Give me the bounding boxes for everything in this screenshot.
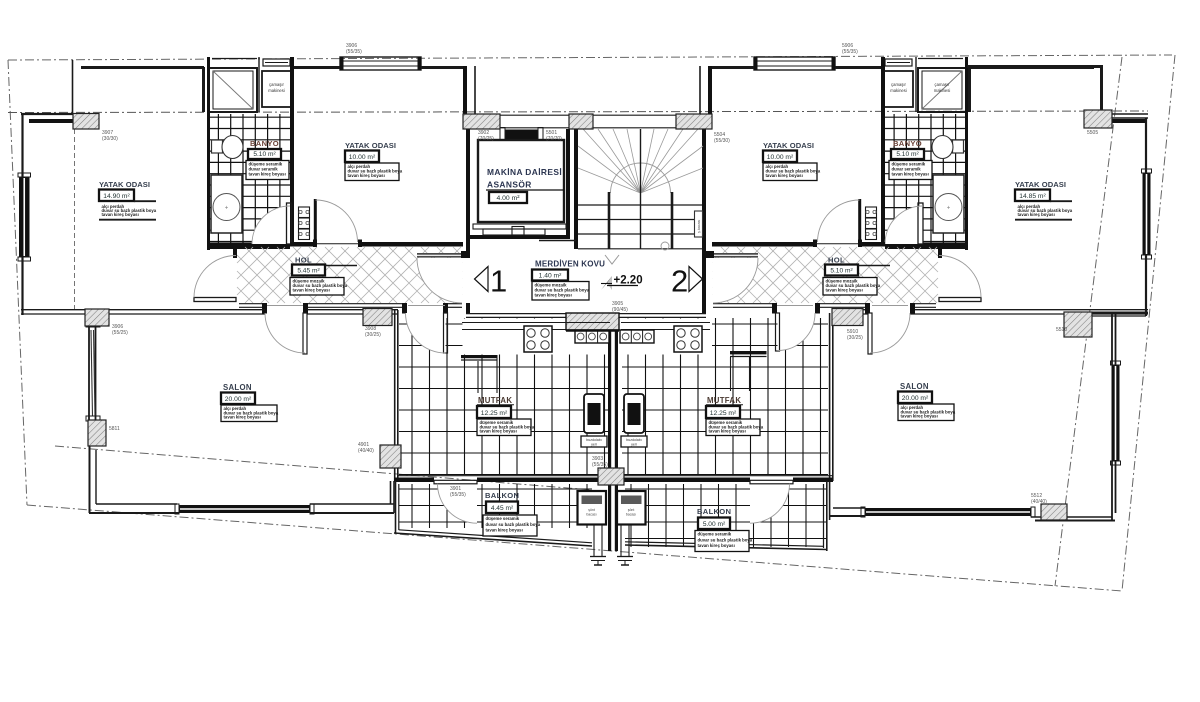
svg-text:çamaşır: çamaşır <box>891 82 906 87</box>
svg-text:ASANSÖR: ASANSÖR <box>487 180 532 190</box>
svg-text:14.85 m²: 14.85 m² <box>1019 193 1046 200</box>
svg-text:duvar su bazlı plastik boya: duvar su bazlı plastik boya <box>486 522 541 527</box>
svg-text:5811: 5811 <box>109 426 120 432</box>
svg-text:14.90 m²: 14.90 m² <box>103 193 130 200</box>
svg-text:BALKON: BALKON <box>697 507 731 516</box>
svg-text:tavan kireç boyası: tavan kireç boyası <box>698 543 735 548</box>
svg-text:tavan kireç boyası: tavan kireç boyası <box>486 528 523 533</box>
svg-text:yeri: yeri <box>591 443 597 447</box>
svg-text:5.45 m²: 5.45 m² <box>297 268 320 275</box>
svg-text:SALON: SALON <box>223 383 252 392</box>
svg-text:çamaşır: çamaşır <box>269 82 284 87</box>
svg-text:+: + <box>225 206 229 212</box>
svg-text:(55/35): (55/35) <box>450 492 466 498</box>
svg-text:5.10 m²: 5.10 m² <box>830 268 853 275</box>
svg-text:1.40 m²: 1.40 m² <box>539 273 562 280</box>
svg-text:tavan kireç boyası: tavan kireç boyası <box>480 429 517 434</box>
svg-text:10.00 m²: 10.00 m² <box>767 154 794 161</box>
svg-text:düşeme seramik: düşeme seramik <box>486 516 520 521</box>
svg-text:(30/25): (30/25) <box>365 332 381 338</box>
svg-text:4.45 m²: 4.45 m² <box>491 505 514 512</box>
svg-text:şönt: şönt <box>628 508 635 512</box>
svg-text:(90/45): (90/45) <box>612 307 628 313</box>
svg-text:tavan kireç boyası: tavan kireç boyası <box>102 212 139 217</box>
svg-text:yeri: yeri <box>631 443 637 447</box>
svg-text:10.00 m²: 10.00 m² <box>349 154 376 161</box>
svg-text:5.10 m²: 5.10 m² <box>253 151 276 158</box>
svg-text:(55/35): (55/35) <box>592 462 608 468</box>
svg-text:BANYO: BANYO <box>250 139 279 148</box>
svg-text:tavan kireç boyası: tavan kireç boyası <box>348 173 385 178</box>
svg-text:YATAK ODASI: YATAK ODASI <box>763 141 814 150</box>
svg-text:YATAK ODASI: YATAK ODASI <box>99 180 150 189</box>
svg-text:1: 1 <box>490 264 507 299</box>
svg-text:SALON: SALON <box>900 382 929 391</box>
svg-text:tavan kireç boyası: tavan kireç boyası <box>709 429 746 434</box>
svg-text:YATAK ODASI: YATAK ODASI <box>345 141 396 150</box>
svg-text:5.10 m²: 5.10 m² <box>896 151 919 158</box>
svg-text:BANYO: BANYO <box>893 139 922 148</box>
svg-text:tavan kireç boyası: tavan kireç boyası <box>901 414 938 419</box>
svg-text:buzdolabı: buzdolabı <box>586 438 602 442</box>
svg-text:şönt: şönt <box>588 508 595 512</box>
svg-text:makinesi: makinesi <box>934 88 951 93</box>
svg-text:duvar su bazlı plastik boya: duvar su bazlı plastik boya <box>698 537 753 542</box>
svg-text:buzdolabı: buzdolabı <box>626 438 642 442</box>
svg-text:(70/70): (70/70) <box>546 136 562 142</box>
svg-text:(40/40): (40/40) <box>358 448 374 454</box>
svg-text:(55/30): (55/30) <box>714 138 730 144</box>
svg-text:MERDİVEN KOVU: MERDİVEN KOVU <box>535 260 605 269</box>
svg-text:5510: 5510 <box>1056 327 1067 333</box>
svg-text:makinesi: makinesi <box>268 88 285 93</box>
svg-text:5.00 m²: 5.00 m² <box>703 521 726 528</box>
svg-text:+: + <box>947 206 951 212</box>
svg-text:tavan kireç boyası: tavan kireç boyası <box>249 172 286 177</box>
svg-text:ş.bacası: ş.bacası <box>697 220 701 233</box>
svg-text:(55/25): (55/25) <box>112 330 128 336</box>
svg-text:+2.20: +2.20 <box>614 275 643 287</box>
svg-text:HOL: HOL <box>295 256 312 265</box>
svg-text:(30/30): (30/30) <box>102 136 118 142</box>
svg-text:5505: 5505 <box>1087 130 1098 136</box>
svg-text:(55/35): (55/35) <box>842 49 858 55</box>
svg-text:tavan kireç boyası: tavan kireç boyası <box>892 172 929 177</box>
svg-text:tavan kireç boyası: tavan kireç boyası <box>766 173 803 178</box>
svg-text:tavan kireç boyası: tavan kireç boyası <box>1018 212 1055 217</box>
svg-text:makinesi: makinesi <box>890 88 907 93</box>
svg-text:YATAK ODASI: YATAK ODASI <box>1015 180 1066 189</box>
svg-text:tavan kireç boyası: tavan kireç boyası <box>826 288 863 293</box>
svg-text:bacası: bacası <box>586 513 596 517</box>
svg-text:MUTFAK: MUTFAK <box>478 396 512 405</box>
svg-text:2: 2 <box>671 264 688 299</box>
svg-text:(30/25): (30/25) <box>847 335 863 341</box>
svg-text:20.00 m²: 20.00 m² <box>902 395 929 402</box>
svg-text:MAKİNA DAİRESİ: MAKİNA DAİRESİ <box>487 167 562 177</box>
svg-text:BALKON: BALKON <box>485 491 519 500</box>
svg-text:bacası: bacası <box>626 513 636 517</box>
svg-text:düşeme seramik: düşeme seramik <box>698 532 732 537</box>
svg-text:4.00 m²: 4.00 m² <box>496 195 520 202</box>
svg-text:tavan kireç boyası: tavan kireç boyası <box>293 288 330 293</box>
svg-text:12.25 m²: 12.25 m² <box>481 410 508 417</box>
svg-text:20.00 m²: 20.00 m² <box>225 396 252 403</box>
svg-text:12.25 m²: 12.25 m² <box>710 410 737 417</box>
svg-text:tavan kireç boyası: tavan kireç boyası <box>224 415 261 420</box>
svg-text:(55/35): (55/35) <box>346 49 362 55</box>
svg-text:tavan kireç boyası: tavan kireç boyası <box>535 292 572 297</box>
svg-text:MUTFAK: MUTFAK <box>707 396 741 405</box>
svg-text:çamaşır: çamaşır <box>935 82 950 87</box>
svg-text:HOL: HOL <box>828 256 845 265</box>
svg-text:(70/25): (70/25) <box>478 136 494 142</box>
svg-text:(40/40): (40/40) <box>1031 499 1047 505</box>
